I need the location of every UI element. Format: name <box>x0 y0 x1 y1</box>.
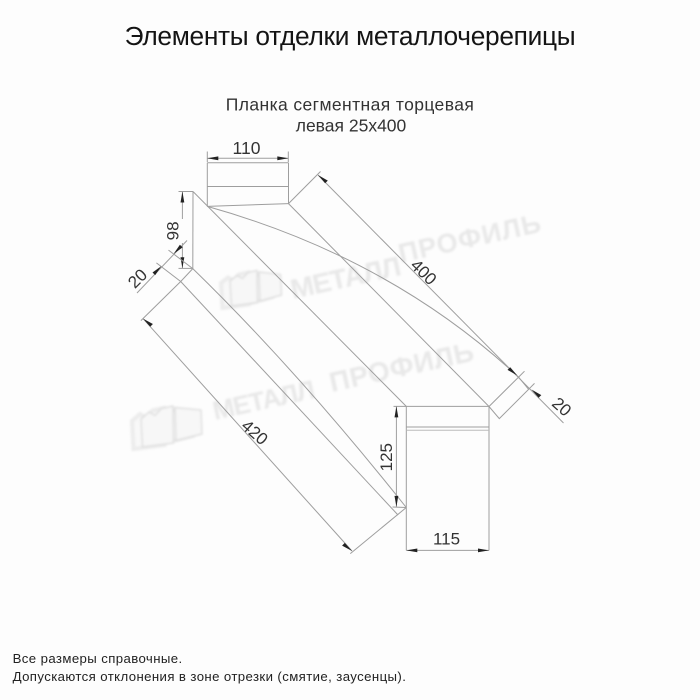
svg-text:ПРОФИЛЬ: ПРОФИЛЬ <box>326 336 477 398</box>
svg-text:98: 98 <box>164 221 183 240</box>
svg-text:125: 125 <box>377 443 396 471</box>
svg-text:110: 110 <box>233 138 261 158</box>
svg-text:420: 420 <box>238 416 272 449</box>
svg-text:Элементы отделки металлочерепи: Элементы отделки металлочерепицы <box>125 21 576 51</box>
svg-text:20: 20 <box>124 265 151 292</box>
svg-text:Планка сегментная торцевая: Планка сегментная торцевая <box>226 95 474 115</box>
svg-text:левая 25x400: левая 25x400 <box>296 116 407 136</box>
svg-text:115: 115 <box>433 530 460 549</box>
svg-text:Все размеры справочные.: Все размеры справочные. <box>13 651 183 666</box>
svg-text:20: 20 <box>548 394 575 421</box>
svg-text:Допускаются отклонения в зоне: Допускаются отклонения в зоне отрезки (с… <box>13 669 407 684</box>
